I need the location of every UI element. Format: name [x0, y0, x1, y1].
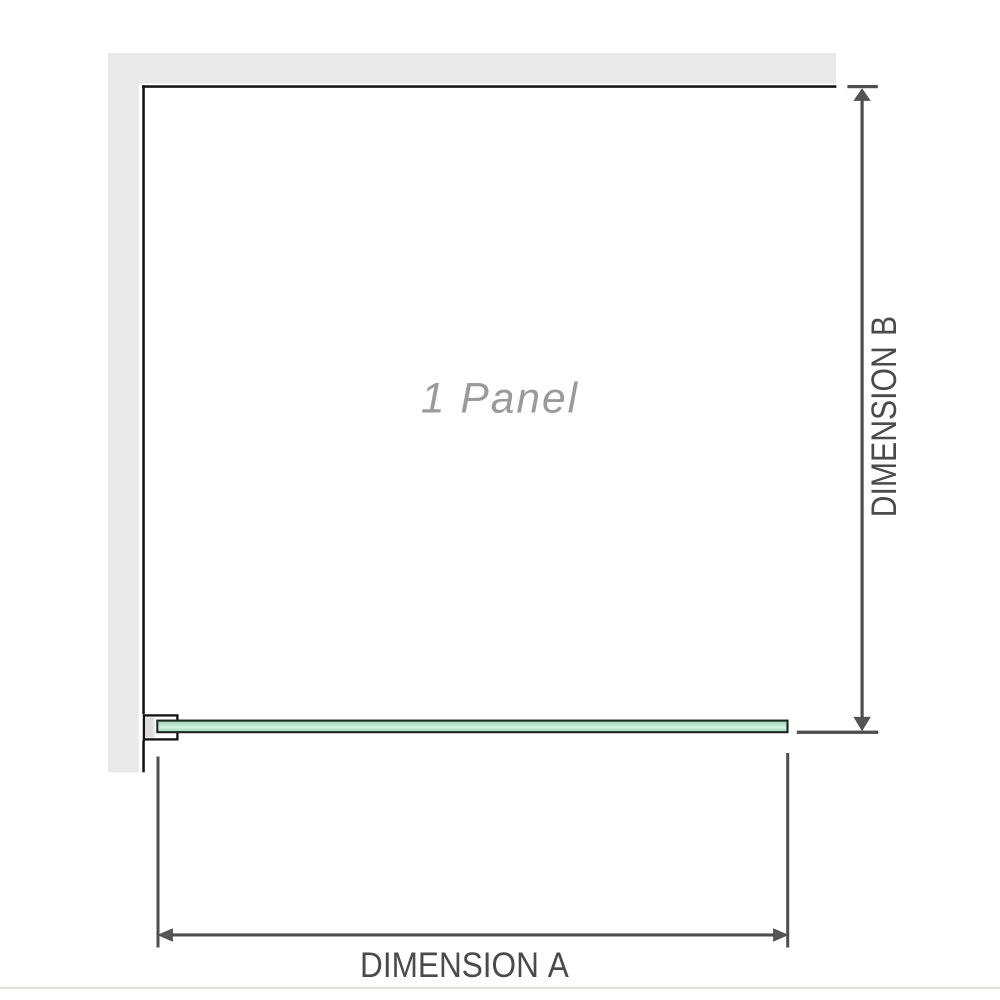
svg-text:DIMENSION B: DIMENSION B: [864, 316, 904, 517]
svg-text:1 Panel: 1 Panel: [421, 375, 579, 422]
svg-text:DIMENSION A: DIMENSION A: [360, 947, 569, 986]
